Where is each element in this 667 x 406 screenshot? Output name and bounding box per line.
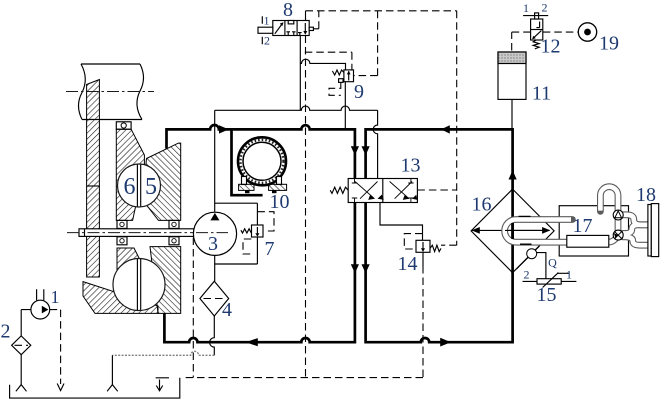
svg-text:1: 1 (566, 268, 572, 282)
svg-text:2: 2 (1, 321, 11, 343)
svg-text:1: 1 (523, 1, 529, 15)
svg-text:7: 7 (265, 238, 275, 260)
svg-text:12: 12 (541, 36, 561, 58)
svg-text:15: 15 (537, 284, 557, 306)
svg-text:5: 5 (145, 174, 157, 200)
svg-text:9: 9 (354, 81, 364, 103)
svg-text:1: 1 (51, 287, 60, 307)
svg-text:4: 4 (222, 299, 232, 321)
svg-text:8: 8 (283, 0, 293, 21)
svg-text:3: 3 (208, 233, 218, 255)
svg-text:Q: Q (548, 256, 557, 270)
svg-text:13: 13 (401, 155, 421, 177)
svg-text:16: 16 (472, 193, 492, 215)
svg-text:17: 17 (573, 215, 593, 237)
svg-text:18: 18 (636, 184, 656, 206)
svg-text:14: 14 (398, 253, 418, 275)
svg-text:2: 2 (524, 268, 530, 282)
svg-text:2: 2 (264, 34, 270, 48)
svg-text:1: 1 (264, 14, 270, 28)
svg-text:6: 6 (124, 174, 136, 200)
svg-text:10: 10 (270, 191, 290, 213)
svg-text:19: 19 (599, 32, 619, 54)
svg-text:2: 2 (542, 1, 548, 15)
svg-text:11: 11 (532, 82, 551, 104)
